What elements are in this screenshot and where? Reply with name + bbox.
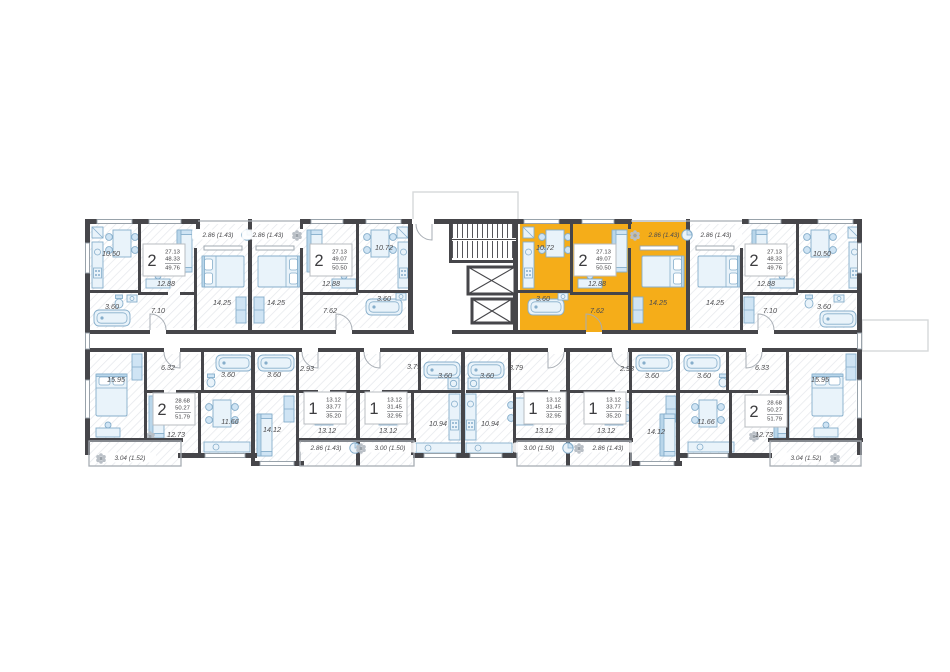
room-area-label: 3.60 [480,371,494,380]
total-area: 32.95 [387,414,402,420]
floor-area: 49.07 [596,257,611,263]
rooms-count: 2 [314,252,323,270]
rooms-count: 2 [157,401,166,419]
balcony-area-label: 2.86 (1.43) [592,445,624,452]
room-area-label: 3.60 [697,371,711,380]
apartment-stat-card: 113.1231.4532.95 [524,392,566,424]
apartment-stat-card: 228.6850.2751.79 [153,393,195,425]
room-area-label: 3.60 [105,302,119,311]
room-area-label: 10.72 [536,243,554,252]
total-area: 49.76 [767,266,782,272]
room-area-label: 10.50 [813,249,831,258]
room-area-label: 12.73 [755,430,773,439]
total-area: 49.76 [165,266,180,272]
room-area-label: 12.88 [157,279,175,288]
floor-area: 33.77 [326,405,341,411]
room-area-label: 12.88 [757,279,775,288]
room-area-label: 15.95 [107,375,126,384]
apartment-stat-card: 227.1349.0750.50 [310,244,352,276]
balcony-area-label: 2.86 (1.43) [202,232,234,239]
floor-area: 50.27 [767,408,782,414]
living-area: 27.13 [165,250,180,256]
balcony-area-label: 3.00 (1.50) [375,445,406,452]
total-area: 35.20 [606,414,621,420]
building-entrance-gap [412,219,434,224]
staircase [452,224,516,258]
rooms-count: 1 [528,400,537,418]
room-area-label: 6.33 [755,363,769,372]
room-area-label: 14.12 [647,427,665,436]
living-area: 28.68 [767,401,782,407]
total-area: 50.50 [332,266,347,272]
room-area-label: 14.12 [263,425,281,434]
apartment-stat-card: 227.1348.3349.76 [143,244,185,276]
room-area-label: 3.60 [817,302,831,311]
balcony-area-label: 2.86 (1.43) [700,232,732,239]
room-area-label: 11.66 [697,417,714,426]
apartment-stat-card: 228.6850.2751.79 [745,395,787,427]
balcony-area-label: 3.04 (1.52) [115,455,146,462]
total-area: 51.79 [767,417,782,423]
room-area-label: 13.12 [597,426,615,435]
fan-icon [682,230,692,240]
balcony-label-group: 2.86 (1.43) [242,230,302,241]
rooms-count: 2 [749,403,758,421]
room-area-label: 12.88 [588,279,606,288]
balcony-label-group: 3.04 (1.52) [780,453,840,464]
room-area-label: 12.88 [322,279,340,288]
floor-area: 33.77 [606,405,621,411]
living-area: 28.68 [175,399,190,405]
balcony-label-group: 2.86 (1.43) [300,443,360,454]
room-area-label: 3.60 [536,294,550,303]
elevator-1 [468,267,515,294]
balcony-area-label: 2.86 (1.43) [310,445,342,452]
living-area: 27.13 [596,250,611,256]
room-area-label: 3.79 [509,363,523,372]
room-area-label: 3.79 [407,362,421,371]
room-area-label: 14.25 [213,298,232,307]
room-area-label: 14.25 [706,298,725,307]
living-area: 13.12 [326,398,341,404]
rooms-count: 1 [588,400,597,418]
room-area-label: 13.12 [379,426,397,435]
living-area: 13.12 [387,398,402,404]
room-area-label: 7.62 [323,306,337,315]
room-area-label: 10.72 [375,243,393,252]
balcony-area-label: 3.04 (1.52) [791,455,822,462]
rooms-count: 2 [147,252,156,270]
total-area: 32.95 [546,414,561,420]
fan-icon [563,443,573,453]
living-area: 13.12 [606,398,621,404]
room-area-label: 3.60 [377,294,391,303]
rooms-count: 2 [749,252,758,270]
floor-area: 31.45 [546,405,561,411]
floor-area: 49.07 [332,257,347,263]
room-area-label: 3.60 [267,370,281,379]
balcony-area-label: 2.86 (1.43) [648,232,680,239]
room-area-label: 10.94 [481,419,499,428]
balcony-label-group: 3.04 (1.52) [96,453,156,464]
apartment-stat-card: 113.1233.7735.20 [584,392,626,424]
apartment-stat-card: 227.1348.3349.76 [745,244,787,276]
living-area: 27.13 [332,250,347,256]
room-area-label: 15.95 [811,375,830,384]
apartment-stat-card: 113.1233.7735.20 [304,392,346,424]
apartment-stat-card: 227.1349.0750.50 [574,244,616,276]
living-area: 27.13 [767,250,782,256]
rooms-count: 1 [369,400,378,418]
floor-area: 48.33 [165,257,180,263]
room-area-label: 2.93 [299,364,314,373]
floor-area: 31.45 [387,405,402,411]
room-area-label: 7.10 [763,306,777,315]
room-area-label: 3.60 [221,370,235,379]
total-area: 50.50 [596,266,611,272]
floor-area: 48.33 [767,257,782,263]
room-area-label: 7.62 [590,306,604,315]
room-area-label: 6.32 [161,363,175,372]
living-area: 13.12 [546,398,561,404]
room-area-label: 10.94 [429,419,447,428]
apartment-stat-card: 113.1231.4532.95 [365,392,407,424]
room-area-label: 14.25 [267,298,286,307]
room-area-label: 7.10 [151,306,165,315]
balcony-label-group: 3.00 (1.50) [513,443,573,454]
room-area-label: 14.25 [649,298,668,307]
total-area: 51.79 [175,415,190,421]
balcony-label-group: 2.86 (1.43) [682,230,742,241]
rooms-count: 2 [578,252,587,270]
balcony-label-group: 3.00 (1.50) [356,443,416,454]
room-area-label: 2.93 [619,364,634,373]
floor-plan-page: 10.5012.8814.253.607.1014.2512.8810.723.… [0,0,950,672]
floor-area: 50.27 [175,406,190,412]
room-area-label: 3.60 [438,371,452,380]
floor-plan: 10.5012.8814.253.607.1014.2512.8810.723.… [0,0,950,672]
total-area: 35.20 [326,414,341,420]
elevator-2 [472,299,512,323]
balcony-area-label: 2.86 (1.43) [252,232,284,239]
room-area-label: 3.60 [645,371,659,380]
room-area-label: 11.66 [221,417,238,426]
balcony-area-label: 3.00 (1.50) [524,445,555,452]
room-area-label: 13.12 [535,426,553,435]
room-area-label: 12.73 [167,430,185,439]
room-area-label: 13.12 [318,426,336,435]
balcony-label-group: 2.86 (1.43) [574,443,634,454]
rooms-count: 1 [308,400,317,418]
room-area-label: 10.50 [102,249,120,258]
